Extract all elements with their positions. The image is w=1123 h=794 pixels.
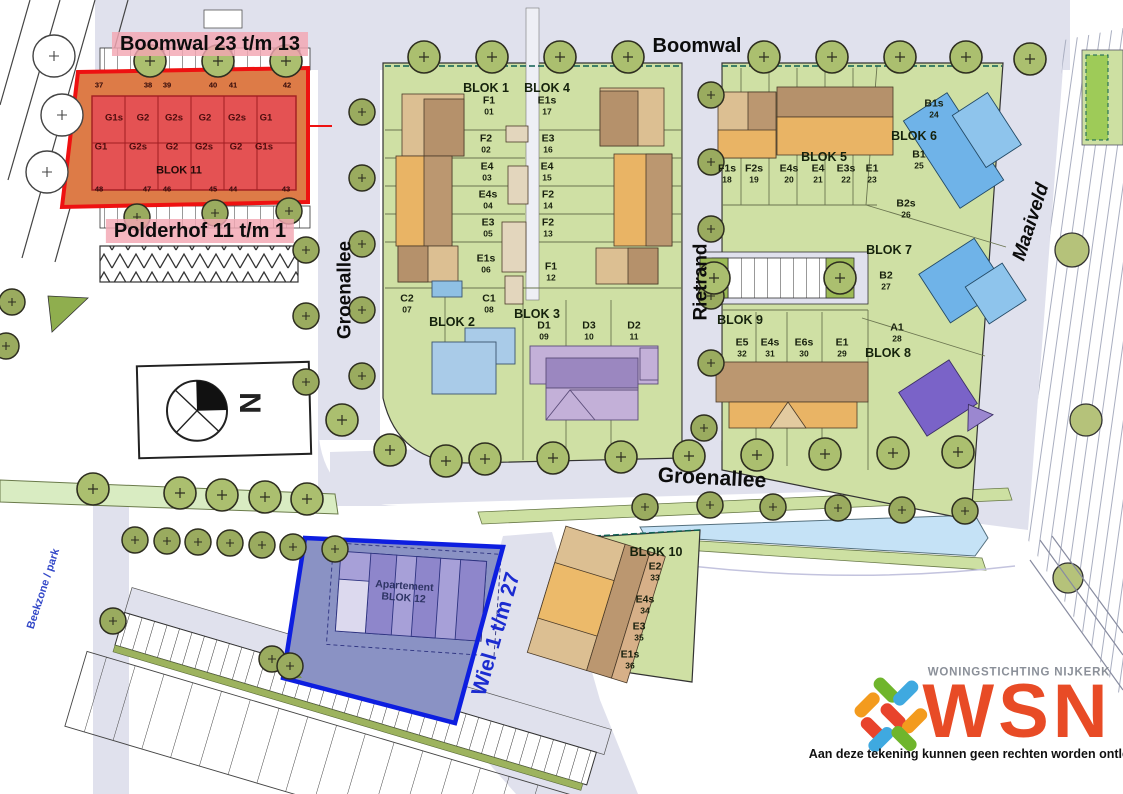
tree-icon xyxy=(889,497,915,523)
tree-icon xyxy=(26,151,68,193)
tree-icon xyxy=(884,41,916,73)
tree-icon xyxy=(877,437,909,469)
block-header-blok2: BLOK 2 xyxy=(429,316,475,329)
tree-icon xyxy=(698,82,724,108)
blok11-type: G2s xyxy=(165,113,183,123)
unit-label-blok6-24: B1s24 xyxy=(924,99,943,120)
buildings-blok5 xyxy=(718,87,893,158)
buildings-blok9 xyxy=(716,362,868,428)
unit-label-blok7-27: B227 xyxy=(879,271,892,292)
blok12-apartment-label: Apartement BLOK 12 xyxy=(374,578,434,606)
blok11-number: 46 xyxy=(163,185,171,193)
unit-label-blok4-14: F214 xyxy=(542,190,554,211)
tree-icon xyxy=(469,443,501,475)
tree-icon xyxy=(349,363,375,389)
tree-icon xyxy=(632,494,658,520)
unit-label-blok5-21: E421 xyxy=(812,164,825,185)
tree-icon xyxy=(41,94,83,136)
tree-icon xyxy=(760,494,786,520)
tree-icon xyxy=(698,350,724,376)
tree-icon xyxy=(741,439,773,471)
logo-disclaimer-text: Aan deze tekening kunnen geen rechten wo… xyxy=(809,748,1123,761)
tree-icon xyxy=(1055,233,1089,267)
tree-icon xyxy=(326,404,358,436)
site-plan-drawing: Boomwal 23 t/m 13 Polderhof 11 t/m 1 Boo… xyxy=(0,0,1123,794)
tree-icon xyxy=(950,41,982,73)
block-header-blok9: BLOK 9 xyxy=(717,314,763,327)
blok11-type: G1 xyxy=(95,142,108,152)
unit-label-blok6-25: B125 xyxy=(912,150,925,171)
logo-brand-text: WSN xyxy=(922,674,1111,750)
unit-label-blok9-32: E532 xyxy=(736,338,749,359)
tree-icon xyxy=(249,481,281,513)
blok11-number: 41 xyxy=(229,81,237,89)
block-header-blok7: BLOK 7 xyxy=(866,244,912,257)
tree-icon xyxy=(0,333,19,359)
tree-icon xyxy=(537,442,569,474)
tree-icon xyxy=(1070,404,1102,436)
unit-label-blok4-13: F213 xyxy=(542,218,554,239)
unit-label-blok1-06: E1s06 xyxy=(477,254,496,275)
tree-icon xyxy=(748,41,780,73)
tree-icon xyxy=(824,262,856,294)
blok11-type: G2 xyxy=(230,142,243,152)
tree-icon xyxy=(33,35,75,77)
tree-icon xyxy=(122,527,148,553)
unit-label-blok10-34: E4s34 xyxy=(636,595,655,616)
unit-label-blok1-03: E403 xyxy=(481,162,494,183)
tree-icon xyxy=(476,41,508,73)
tree-icon xyxy=(164,477,196,509)
unit-label-blok5-20: E4s20 xyxy=(780,164,799,185)
street-label-boomwal: Boomwal xyxy=(653,36,742,56)
blok11-number: 48 xyxy=(95,185,103,193)
block-header-blok1: BLOK 1 xyxy=(463,82,509,95)
unit-label-blok5-23: E123 xyxy=(866,164,879,185)
unit-label-blok4-17: E1s17 xyxy=(538,96,557,117)
unit-label-blok4-16: E316 xyxy=(542,134,555,155)
tree-icon xyxy=(322,536,348,562)
tree-icon xyxy=(942,436,974,468)
parking-polderhof-hatch xyxy=(100,246,298,282)
blok11-number: 38 xyxy=(144,81,152,89)
unit-label-blok8-28: A128 xyxy=(890,323,903,344)
unit-label-blok9-30: E6s30 xyxy=(795,338,814,359)
blok11-type: G2 xyxy=(137,113,150,123)
unit-label-blok10-33: E233 xyxy=(649,562,662,583)
blok11-type: G2s xyxy=(129,142,147,152)
tree-icon xyxy=(349,99,375,125)
center-path xyxy=(526,8,539,300)
tree-icon xyxy=(277,653,303,679)
tree-icon xyxy=(185,529,211,555)
tree-icon xyxy=(100,608,126,634)
street-label-rietrand: Rietrand xyxy=(692,243,711,320)
unit-label-blok3-10: D310 xyxy=(582,321,595,342)
green-triangle xyxy=(48,296,88,332)
unit-label-blok1-04: E4s04 xyxy=(479,190,498,211)
blok11-type: G2 xyxy=(166,142,179,152)
tree-icon xyxy=(1014,43,1046,75)
tree-icon xyxy=(217,530,243,556)
unit-label-blok2-08: C108 xyxy=(482,294,495,315)
tree-icon xyxy=(154,528,180,554)
blok11-number: 40 xyxy=(209,81,217,89)
block-header-blok11: BLOK 11 xyxy=(156,166,202,177)
tree-icon xyxy=(349,165,375,191)
blok11-number: 43 xyxy=(282,185,290,193)
tree-icon xyxy=(408,41,440,73)
tree-icon xyxy=(816,41,848,73)
street-label-groenallee-vertical: Groenallee xyxy=(336,241,355,339)
block-header-blok10: BLOK 10 xyxy=(630,546,683,559)
wsn-logo: WONINGSTICHTING NIJKERK WSN Aan deze tek… xyxy=(845,658,1115,768)
blok11-number: 44 xyxy=(229,185,237,193)
blok11-number: 37 xyxy=(95,81,103,89)
blok11-number: 45 xyxy=(209,185,217,193)
unit-label-blok3-11: D211 xyxy=(627,321,640,342)
unit-label-blok4-12: F112 xyxy=(545,262,557,283)
tree-icon xyxy=(293,369,319,395)
tree-icon xyxy=(280,534,306,560)
tree-icon xyxy=(825,495,851,521)
tree-icon xyxy=(952,498,978,524)
street-label-groenallee-horizontal: Groenallee xyxy=(657,465,767,492)
blok11-type: G1s xyxy=(105,113,123,123)
tree-icon xyxy=(697,492,723,518)
tree-icon xyxy=(698,216,724,242)
unit-label-blok5-19: F2s19 xyxy=(745,164,763,185)
pinwheel-icon xyxy=(852,675,930,755)
tree-icon xyxy=(430,445,462,477)
blok11-type: G2s xyxy=(228,113,246,123)
unit-label-blok2-07: C207 xyxy=(400,294,413,315)
tree-icon xyxy=(544,41,576,73)
unit-label-blok5-22: E3s22 xyxy=(837,164,856,185)
tree-icon xyxy=(612,41,644,73)
highlight-label-boomwal-range: Boomwal 23 t/m 13 xyxy=(112,32,308,56)
unit-label-blok7-26: B2s26 xyxy=(896,199,915,220)
blok11-type: G1s xyxy=(255,142,273,152)
block-header-blok4: BLOK 4 xyxy=(524,82,570,95)
unit-label-blok5-18: F1s18 xyxy=(718,164,736,185)
unit-label-blok9-31: E4s31 xyxy=(761,338,780,359)
unit-label-blok10-35: E335 xyxy=(633,622,646,643)
north-arrow-box xyxy=(137,362,311,458)
block-header-blok3: BLOK 3 xyxy=(514,308,560,321)
tree-icon xyxy=(293,237,319,263)
tree-icon xyxy=(293,303,319,329)
tree-icon xyxy=(0,289,25,315)
blok11-number: 39 xyxy=(163,81,171,89)
unit-label-blok3-09: D109 xyxy=(537,321,550,342)
unit-label-blok1-05: E305 xyxy=(482,218,495,239)
unit-label-blok10-36: E1s36 xyxy=(621,650,640,671)
tree-icon xyxy=(605,441,637,473)
tree-icon xyxy=(77,473,109,505)
blok11-number: 42 xyxy=(283,81,291,89)
blok11-type: G2 xyxy=(199,113,212,123)
block-header-blok6: BLOK 6 xyxy=(891,130,937,143)
north-letter: N xyxy=(234,392,264,414)
tree-icon xyxy=(691,415,717,441)
highlight-label-polderhof-range: Polderhof 11 t/m 1 xyxy=(106,219,294,243)
unit-label-blok1-02: F202 xyxy=(480,134,492,155)
tree-icon xyxy=(291,483,323,515)
block-header-blok5: BLOK 5 xyxy=(801,151,847,164)
tree-icon xyxy=(206,479,238,511)
unit-label-blok9-29: E129 xyxy=(836,338,849,359)
blok11-number: 47 xyxy=(143,185,151,193)
tree-icon xyxy=(374,434,406,466)
unit-label-blok1-01: F101 xyxy=(483,96,495,117)
blok11-type: G1 xyxy=(260,113,273,123)
unit-label-blok4-15: E415 xyxy=(541,162,554,183)
tree-icon xyxy=(249,532,275,558)
block-header-blok8: BLOK 8 xyxy=(865,347,911,360)
tree-icon xyxy=(809,438,841,470)
blok11-type: G2s xyxy=(195,142,213,152)
